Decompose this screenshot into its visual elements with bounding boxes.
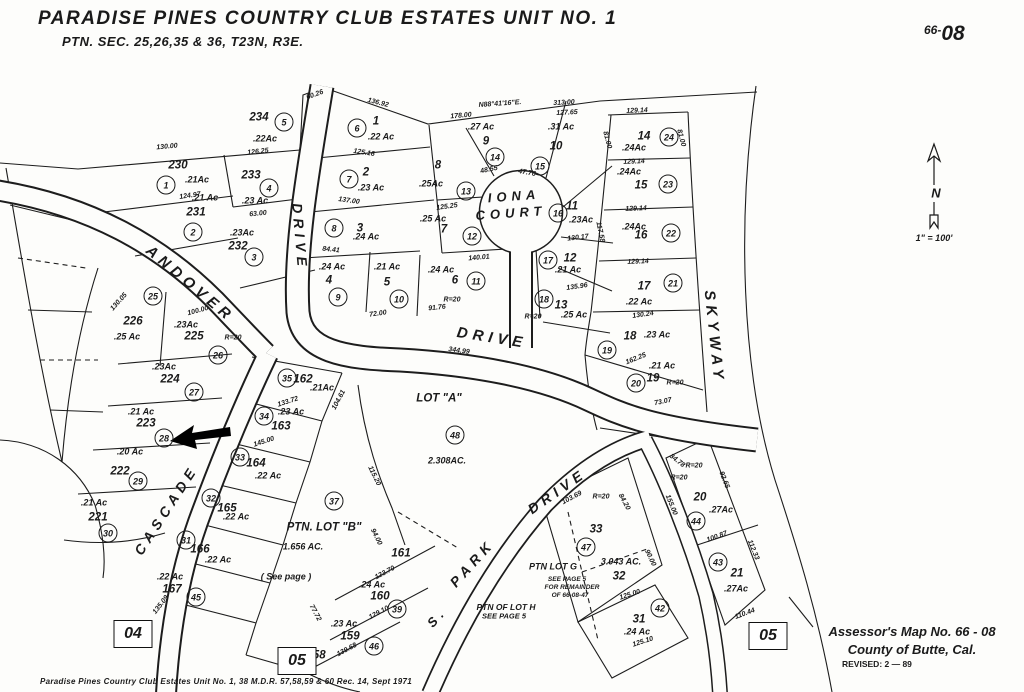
lot-6-apn-circle: 11 — [467, 272, 486, 291]
map-note: PTN LOT G — [529, 563, 577, 572]
map-note: SEE PAGE 5 — [548, 577, 586, 584]
lot-6-number-label: 6 — [452, 275, 458, 287]
area-lot-a--number-label: LOT "A" — [416, 393, 461, 405]
lot-8-number-label: 8 — [435, 160, 441, 172]
lot-224-apn-circle: 27 — [185, 383, 204, 402]
lot-11-number-label: 11 — [566, 201, 578, 213]
lot-163-acreage-label: .23 Ac — [278, 408, 304, 417]
lot-226-number-label: 226 — [123, 316, 142, 328]
lot-160-apn-circle: 39 — [388, 600, 407, 619]
measurement-label: 129.14 — [627, 258, 649, 266]
lot-8-apn-circle: 13 — [457, 182, 476, 201]
lot-224-number-label: 224 — [160, 374, 179, 386]
scale-label: 1" = 100' — [916, 233, 953, 243]
lot-222-acreage-label: .20 Ac — [117, 448, 143, 457]
lot-226-apn-circle: 25 — [144, 287, 163, 306]
lot-225-apn-circle: 26 — [209, 346, 228, 365]
lot-232-acreage-label: .23Ac — [230, 229, 254, 238]
area-ptn-lot-b--apn-circle: 37 — [325, 492, 344, 511]
lot-19-number-label: 19 — [647, 373, 660, 385]
area-ptn-lot-b--note: ( See page ) — [261, 573, 312, 582]
lot-221-acreage-label: .21 Ac — [81, 499, 107, 508]
measurement-label: R=20 — [667, 380, 684, 387]
lot-18-apn-circle: 19 — [598, 341, 617, 360]
lot-12-number-label: 12 — [564, 253, 577, 265]
lot-31-apn-circle: 42 — [651, 599, 670, 618]
lot-160-acreage-label: .24 Ac — [359, 581, 385, 590]
lot-2-acreage-label: .23 Ac — [358, 184, 384, 193]
lot-17-apn-circle: 21 — [664, 274, 683, 293]
lot-1-apn-circle: 6 — [348, 119, 367, 138]
lot-19-apn-circle: 20 — [627, 374, 646, 393]
lot-230-number-label: 230 — [168, 160, 187, 172]
lot-230-acreage-label: .21Ac — [185, 176, 209, 185]
lot-13-apn-circle: 18 — [535, 290, 554, 309]
measurement-label: 129.14 — [623, 158, 645, 166]
lot-167-apn-circle: 45 — [187, 588, 206, 607]
lot-1-number-label: 1 — [373, 116, 379, 128]
lot-7-acreage-label: .25 Ac — [420, 215, 446, 224]
assessor-map-sheet: PARADISE PINES COUNTRY CLUB ESTATES UNIT… — [0, 0, 1024, 692]
lot-165-acreage-label: .22 Ac — [223, 513, 249, 522]
area-ptn-lot-b--acreage-label: 1.656 AC. — [283, 543, 323, 552]
lot-9-acreage-label: .27 Ac — [468, 123, 494, 132]
lot-6-acreage-label: .24 Ac — [428, 266, 454, 275]
lot-221-number-label: 221 — [88, 512, 107, 524]
lot-13-acreage-label: .25 Ac — [561, 311, 587, 320]
lot-159-apn-circle: 46 — [365, 637, 384, 656]
lot-17-number-label: 17 — [638, 281, 651, 293]
measurement-label: 129.14 — [626, 107, 648, 115]
sheet-number-prefix: 66- — [924, 23, 941, 37]
lot-231-number-label: 231 — [186, 207, 205, 219]
stamp-line2: County of Butte, Cal. — [812, 642, 1012, 657]
measurement-label: R=20 — [593, 494, 610, 501]
lot-233-acreage-label: .23 Ac — [242, 197, 268, 206]
lot-165-apn-circle: 32 — [202, 489, 221, 508]
lot-14-acreage-label: .24Ac — [622, 144, 646, 153]
area-lot-a--acreage-label: 2.308AC. — [428, 457, 466, 466]
measurement-label: 127.65 — [556, 109, 578, 117]
measurement-label: R=20 — [444, 297, 461, 304]
map-title: PARADISE PINES COUNTRY CLUB ESTATES UNIT… — [38, 8, 617, 30]
lot-222-number-label: 222 — [110, 466, 129, 478]
lot-166-acreage-label: .22 Ac — [205, 556, 231, 565]
lot-16-acreage-label: .24Ac — [622, 223, 646, 232]
lot-20-apn-circle: 44 — [687, 512, 706, 531]
lot-161-number-label: 161 — [391, 548, 410, 560]
lot-234-acreage-label: .22Ac — [253, 135, 277, 144]
map-note: PTN OF LOT H — [476, 603, 535, 612]
lot-231-apn-circle: 2 — [184, 223, 203, 242]
lot-33-number-label: 33 — [590, 524, 603, 536]
lot-223-apn-circle: 28 — [155, 429, 174, 448]
lot-18-acreage-label: .23 Ac — [644, 331, 670, 340]
lot-21-acreage-label: .27Ac — [724, 585, 748, 594]
lot-10-acreage-label: .31 Ac — [548, 123, 574, 132]
lot-32-acreage-label: 3.043 AC. — [601, 558, 641, 567]
lot-4-acreage-label: .24 Ac — [319, 263, 345, 272]
lot-19-acreage-label: .21 Ac — [649, 362, 675, 371]
lot-7-number-label: 7 — [441, 224, 447, 236]
lot-167-acreage-label: .22 Ac — [157, 573, 183, 582]
lot-3-acreage-label: .24 Ac — [353, 233, 379, 242]
lot-18-number-label: 18 — [624, 331, 637, 343]
lot-221-apn-circle: 30 — [99, 524, 118, 543]
lot-33-apn-circle: 47 — [577, 538, 596, 557]
measurement-label: 313.00 — [553, 99, 575, 107]
lot-223-number-label: 223 — [136, 418, 155, 430]
lot-15-number-label: 15 — [635, 180, 648, 192]
lot-224-acreage-label: .23Ac — [152, 363, 176, 372]
sheet-number-main: 08 — [941, 22, 964, 45]
lot-32-number-label: 32 — [613, 571, 626, 583]
lot-164-number-label: 164 — [246, 458, 265, 470]
lot-15-acreage-label: .24Ac — [617, 168, 641, 177]
lot-14-number-label: 14 — [638, 131, 651, 143]
lot-164-apn-circle: 33 — [231, 448, 250, 467]
lot-17-acreage-label: .22 Ac — [626, 298, 652, 307]
lot-15-apn-circle: 23 — [659, 175, 678, 194]
lot-225-acreage-label: .23Ac — [174, 321, 198, 330]
lot-225-number-label: 225 — [184, 331, 203, 343]
recording-note: Paradise Pines Country Club Estates Unit… — [40, 677, 412, 686]
measurement-label: 129.14 — [625, 205, 647, 213]
lot-20-number-label: 20 — [694, 492, 707, 504]
lot-163-apn-circle: 34 — [255, 407, 274, 426]
lot-163-number-label: 163 — [271, 421, 290, 433]
lot-7-apn-circle: 12 — [463, 227, 482, 246]
adjacent-page-tab-05[interactable]: 05 — [749, 622, 788, 650]
lot-16-number-label: 16 — [635, 230, 648, 242]
lot-5-acreage-label: .21 Ac — [374, 263, 400, 272]
lot-2-number-label: 2 — [363, 167, 369, 179]
map-note: OF 66-08-47 — [552, 593, 589, 600]
lot-3-apn-circle: 8 — [325, 219, 344, 238]
lot-166-apn-circle: 31 — [177, 531, 196, 550]
sheet-number: 66-08 — [924, 22, 965, 46]
lot-223-acreage-label: .21 Ac — [128, 408, 154, 417]
lot-232-apn-circle: 3 — [245, 248, 264, 267]
lot-2-apn-circle: 7 — [340, 170, 359, 189]
lot-233-number-label: 233 — [241, 170, 260, 182]
street-label-iona: IONA — [487, 188, 540, 205]
lot-5-apn-circle: 10 — [390, 290, 409, 309]
lot-4-number-label: 4 — [326, 275, 332, 287]
map-note: SEE PAGE 5 — [482, 612, 526, 620]
stamp-revised: REVISED: 2 — 89 — [842, 659, 1012, 669]
adjacent-page-tab-05[interactable]: 05 — [278, 647, 317, 675]
lot-31-acreage-label: .24 Ac — [624, 628, 650, 637]
lot-232-number-label: 232 — [228, 241, 247, 253]
map-note: FOR REMAINDER — [545, 585, 600, 592]
lot-11-apn-circle: 16 — [549, 204, 568, 223]
lot-9-apn-circle: 14 — [486, 148, 505, 167]
measurement-label: R=20 — [525, 314, 542, 321]
assessor-stamp: Assessor's Map No. 66 - 08 County of But… — [812, 624, 1012, 669]
lot-5-number-label: 5 — [384, 277, 390, 289]
measurement-label: R=20 — [671, 475, 688, 482]
lot-234-number-label: 234 — [249, 112, 268, 124]
lot-162-acreage-label: .21Ac — [310, 384, 334, 393]
lot-159-number-label: 159 — [340, 631, 359, 643]
lot-222-apn-circle: 29 — [129, 472, 148, 491]
lot-8-acreage-label: .25Ac — [419, 180, 443, 189]
measurement-label: R=20 — [686, 463, 703, 470]
stamp-line1: Assessor's Map No. 66 - 08 — [812, 624, 1012, 639]
lot-10-number-label: 10 — [550, 141, 563, 153]
lot-226-acreage-label: .25 Ac — [114, 333, 140, 342]
lot-12-acreage-label: .21 Ac — [555, 266, 581, 275]
north-label: N — [931, 186, 940, 201]
lot-21-number-label: 21 — [731, 568, 744, 580]
lot-234-apn-circle: 5 — [275, 113, 294, 132]
lot-11-acreage-label: .23Ac — [569, 216, 593, 225]
lot-160-number-label: 160 — [370, 591, 389, 603]
lot-31-number-label: 31 — [633, 614, 646, 626]
lot-4-apn-circle: 9 — [329, 288, 348, 307]
lot-21-apn-circle: 43 — [709, 553, 728, 572]
lot-159-acreage-label: .23 Ac — [331, 620, 357, 629]
lot-230-apn-circle: 1 — [157, 176, 176, 195]
lot-9-number-label: 9 — [483, 136, 489, 148]
adjacent-page-tab-04[interactable]: 04 — [114, 620, 153, 648]
lot-20-acreage-label: .27Ac — [709, 506, 733, 515]
lot-1-acreage-label: .22 Ac — [368, 133, 394, 142]
area-ptn-lot-b--number-label: PTN. LOT "B" — [287, 522, 362, 534]
area-lot-a--apn-circle: 48 — [446, 426, 465, 445]
lot-162-apn-circle: 35 — [278, 369, 297, 388]
measurement-label: R=20 — [225, 335, 242, 342]
lot-16-apn-circle: 22 — [662, 224, 681, 243]
map-subtitle: PTN. SEC. 25,26,35 & 36, T23N, R3E. — [62, 34, 304, 49]
lot-164-acreage-label: .22 Ac — [255, 472, 281, 481]
